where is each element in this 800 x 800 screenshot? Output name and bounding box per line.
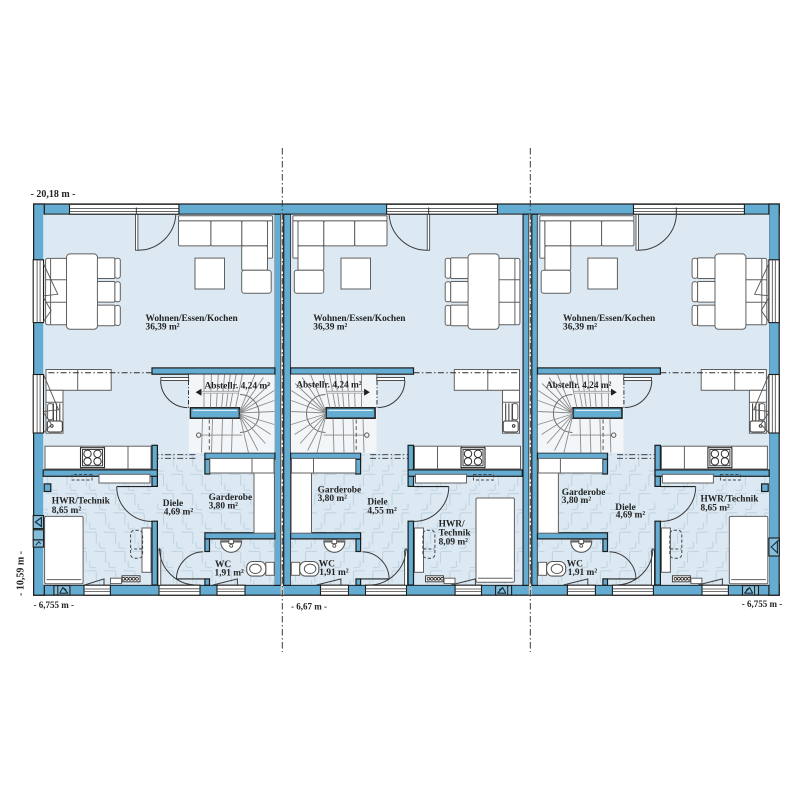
svg-text:4,55 m²: 4,55 m² (367, 507, 397, 517)
svg-text:1,91 m²: 1,91 m² (568, 568, 598, 578)
svg-text:- 6,67 m -: - 6,67 m - (291, 601, 327, 611)
svg-text:8,65 m²: 8,65 m² (52, 506, 82, 516)
svg-text:36,39 m²: 36,39 m² (313, 322, 347, 332)
svg-text:- 20,18 m -: - 20,18 m - (31, 189, 76, 200)
svg-text:- 6,755 m -: - 6,755 m - (742, 599, 783, 609)
svg-text:3,80 m²: 3,80 m² (562, 496, 592, 506)
svg-text:4,69 m²: 4,69 m² (164, 507, 194, 517)
svg-text:3,80 m²: 3,80 m² (209, 502, 239, 512)
svg-text:36,39 m²: 36,39 m² (563, 322, 597, 332)
svg-text:1,91 m²: 1,91 m² (319, 568, 349, 578)
svg-text:- 10,59 m -: - 10,59 m - (16, 551, 27, 596)
svg-text:- 6,755 m -: - 6,755 m - (34, 600, 75, 610)
svg-text:8,65 m²: 8,65 m² (701, 503, 731, 513)
svg-text:3,80 m²: 3,80 m² (318, 494, 348, 504)
svg-text:36,39 m²: 36,39 m² (146, 322, 180, 332)
svg-text:1,91 m²: 1,91 m² (215, 569, 245, 579)
svg-text:4,69 m²: 4,69 m² (616, 511, 646, 521)
svg-text:Abstellr. 4,24 m²: Abstellr. 4,24 m² (296, 381, 362, 391)
svg-text:8,09 m²: 8,09 m² (439, 537, 469, 547)
svg-text:Abstellr. 4,24 m²: Abstellr. 4,24 m² (546, 381, 612, 391)
svg-text:Abstellr. 4,24 m²: Abstellr. 4,24 m² (205, 381, 271, 391)
